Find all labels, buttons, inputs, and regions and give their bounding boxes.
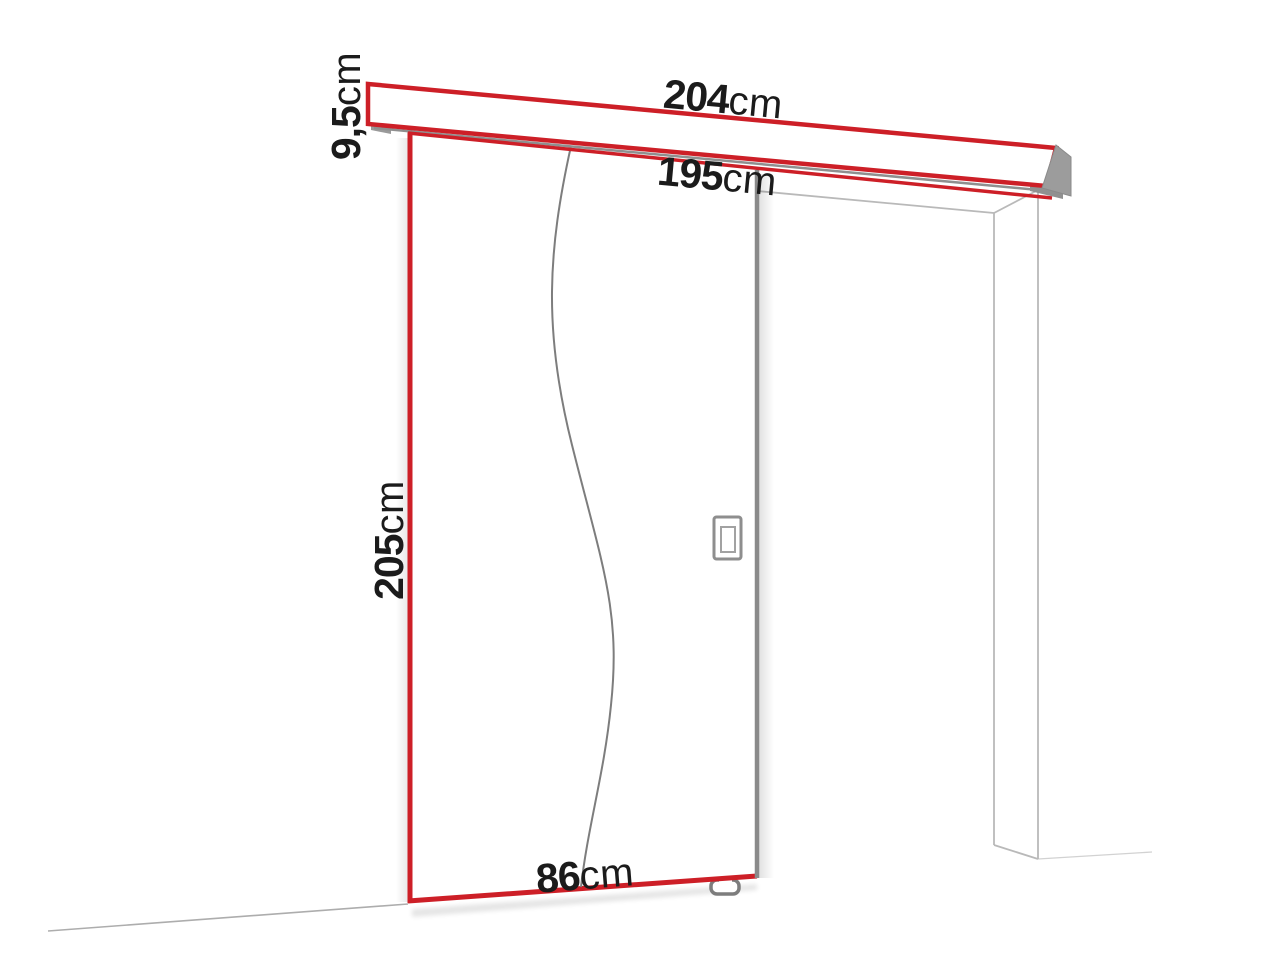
dimension-label-track-height: 9,5cm: [323, 52, 369, 160]
door-handle-recess: [721, 527, 735, 552]
doorway-frame: [757, 190, 1038, 859]
door-panel-face: [408, 131, 757, 903]
dimension-label-door-height: 205cm: [366, 480, 412, 600]
frame-bottom-edge-line: [994, 845, 1038, 859]
floor-line-right: [1038, 852, 1152, 859]
frame-lintel-line: [757, 191, 994, 213]
diagram-canvas: 204cm 9,5cm 195cm 205cm 86cm: [0, 0, 1283, 962]
sliding-door-panel: [408, 129, 757, 903]
opening-shadow: [759, 174, 774, 878]
sliding-door-dimension-diagram: 204cm 9,5cm 195cm 205cm 86cm: [0, 0, 1283, 962]
dimension-label-door-width: 86cm: [534, 848, 635, 902]
floor-line-left: [48, 904, 408, 931]
